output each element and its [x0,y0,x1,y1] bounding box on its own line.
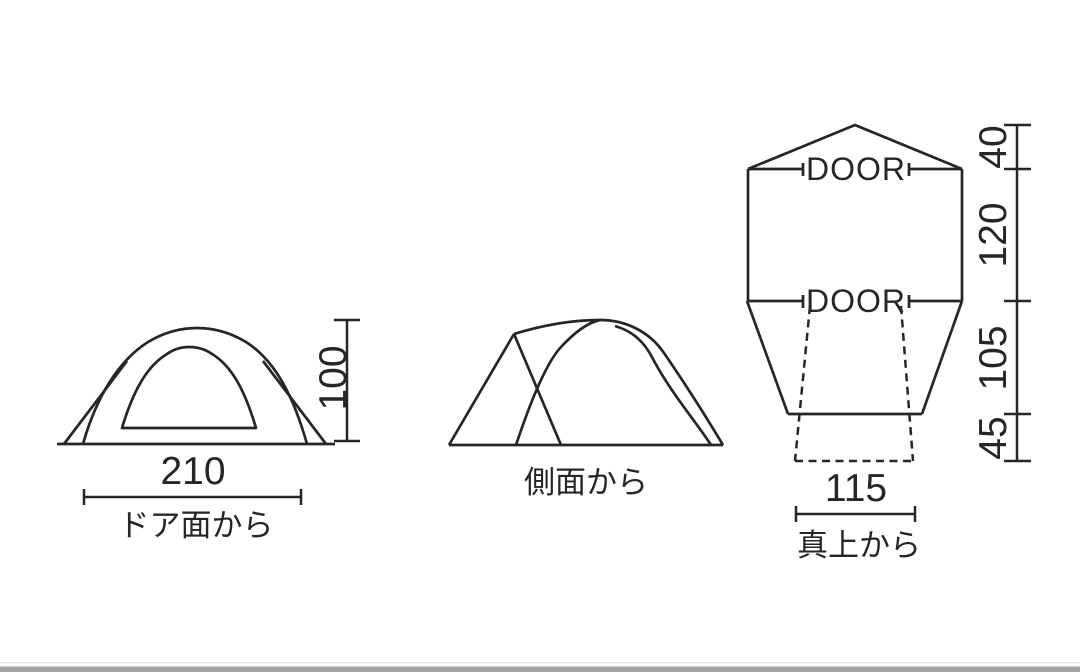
front-view: 100 210 ドア面から [57,320,360,543]
top-door2-label: DOOR [806,283,906,319]
top-segment-flap-value: 45 [972,416,1015,459]
diagram-page: { "views": { "front": { "caption": "ドア面か… [0,0,1080,672]
top-segment-body-value: 120 [972,202,1015,267]
top-door2-line-right [909,295,962,308]
top-door1-label: DOOR [806,151,906,187]
top-width-value: 115 [825,467,887,510]
bottom-edge-bar [0,667,1080,672]
front-height-dimension: 100 [312,320,360,441]
side-view-caption: 側面から [524,465,648,500]
front-outer-dome-outline [83,328,307,444]
top-view: DOOR DOOR 40 120 105 45 115 真上から [747,125,1031,563]
side-dome-outer-line [600,320,723,445]
top-door-flap-dashed-outline [795,306,913,461]
front-door-arch-outline [122,347,256,428]
front-view-caption: ドア面から [119,508,274,543]
bottom-edge-strip [0,662,1080,672]
top-door2-line-left [747,295,803,308]
side-dome-inner-line [615,326,711,445]
front-width-dimension: 210 [84,450,301,505]
front-width-value: 210 [160,450,225,493]
bottom-edge-highlight-line [0,662,1080,663]
side-ridge-line [514,320,600,334]
top-segment-lower-value: 105 [972,325,1015,390]
top-right-dimension-line [1004,125,1031,461]
top-right-dimension: 40 120 105 45 [972,125,1031,461]
top-view-caption: 真上から [797,528,921,563]
front-left-guy-line [64,361,127,444]
tent-dimensions-diagram: 100 210 ドア面から 側面から DOOR DOOR 40 [0,0,1080,672]
side-view: 側面から [449,320,723,500]
top-width-dimension: 115 [796,467,915,522]
top-segment-roof-value: 40 [972,125,1015,168]
side-left-slope-line [449,334,514,445]
side-front-pole-arc [516,320,600,445]
front-height-value: 100 [312,345,355,410]
